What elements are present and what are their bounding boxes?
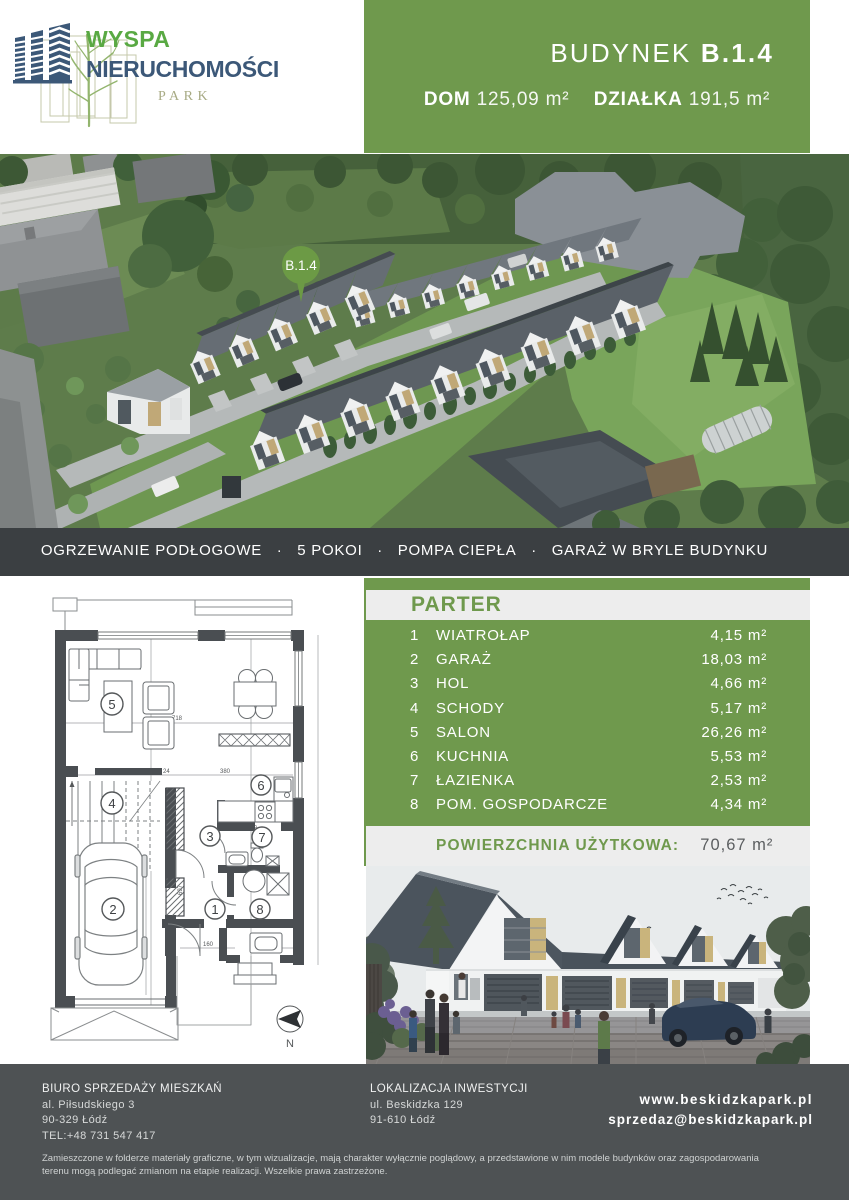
- svg-text:6: 6: [257, 778, 264, 793]
- svg-text:3: 3: [206, 829, 213, 844]
- svg-text:5: 5: [108, 697, 115, 712]
- svg-text:1: 1: [211, 902, 218, 917]
- svg-text:2: 2: [109, 902, 116, 917]
- svg-text:N: N: [286, 1038, 294, 1050]
- svg-text:4: 4: [108, 796, 115, 811]
- svg-text:B.1.4: B.1.4: [285, 258, 317, 273]
- svg-text:8: 8: [256, 902, 263, 917]
- svg-text:7: 7: [258, 830, 265, 845]
- svg-text:380: 380: [220, 769, 231, 775]
- svg-text:160: 160: [203, 942, 214, 948]
- svg-text:24: 24: [163, 769, 170, 775]
